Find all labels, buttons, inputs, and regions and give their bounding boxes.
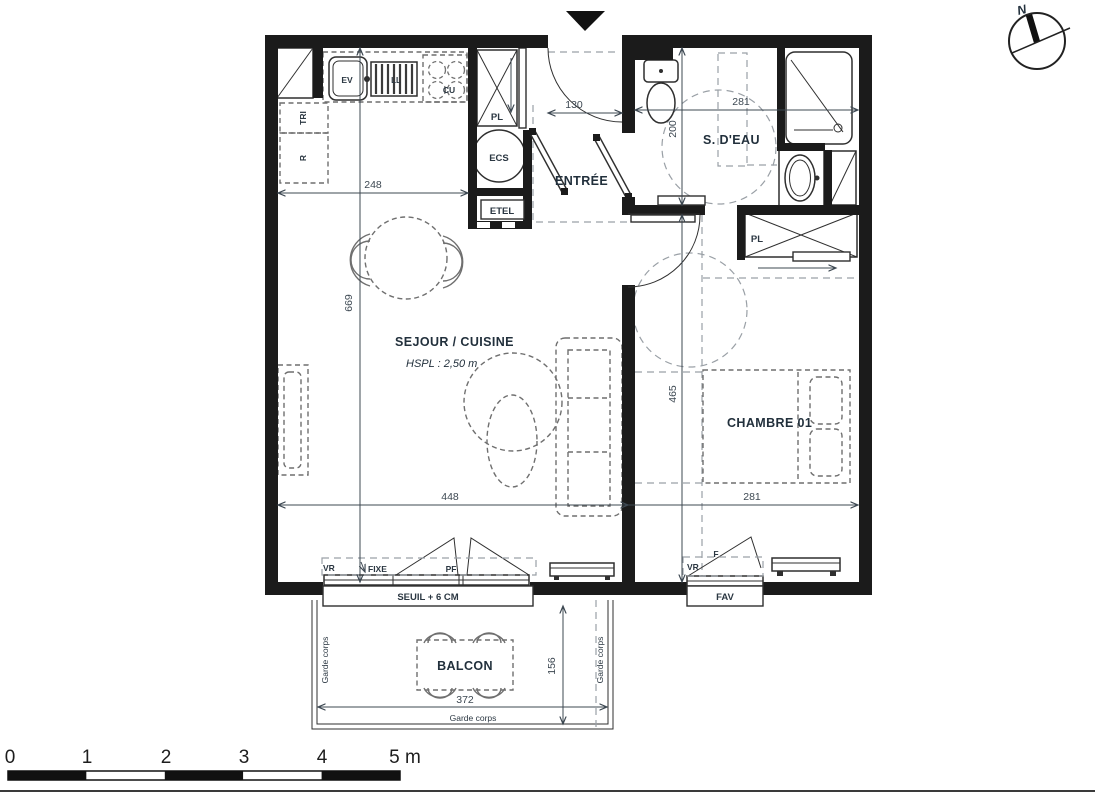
tv-console [550,563,614,576]
etel-vent-notch [477,222,490,228]
entree-door-leaves [529,128,632,200]
label-vr-right: VR [687,562,699,572]
label-garde-corps-right: Garde corps [595,637,605,684]
scale-tick-0: 0 [5,747,16,768]
bed-pillow [810,429,842,476]
label-pl-entree: PL [491,112,503,123]
wall-bottom-b [530,582,687,595]
wall-left [265,35,278,595]
sofa [556,338,622,516]
wall-toilet-stub [635,48,673,60]
scale-tick-3: 3 [239,747,250,768]
dining-chairs [350,234,462,288]
toilet-button [659,69,663,73]
dim-448: 448 [441,491,459,503]
label-tri: TRI [298,111,308,125]
armchair [464,353,562,451]
sofa-seat [568,350,610,506]
equipment [277,48,857,580]
label-seuil: SEUIL + 6 CM [397,592,458,603]
faucet-icon [364,76,370,82]
dining-table [365,217,447,299]
room-note-hspl: HSPL : 2,50 m [406,358,477,370]
scale-tick-4: 4 [317,747,328,768]
toilet-bowl [647,83,675,123]
label-garde-corps-bottom: Garde corps [450,713,497,723]
scale-tick-2: 2 [161,747,172,768]
dim-248: 248 [364,179,382,191]
wall-entree-bain-upper [622,48,635,133]
floor-plan-page: N 0 1 2 3 4 5 m SEJOUR / CUISINE HSPL : … [0,0,1095,800]
wall-under-ecs [468,188,532,196]
label-etel: ETEL [490,206,514,217]
dim-281-chambre: 281 [743,491,761,503]
label-ev: EV [341,75,353,85]
sliding-door-track [631,215,695,222]
label-garde-corps-left: Garde corps [320,637,330,684]
dim-200: 200 [667,120,679,138]
basin-faucet [815,176,820,181]
label-cu: CU [443,85,455,95]
dim-669: 669 [343,294,355,312]
bench-foot [830,571,836,576]
scale-tick-5: 5 m [389,747,421,768]
cabinet-wall-stub [313,48,323,98]
bedroom-door-swing [628,215,700,287]
closet-door-leaf [519,48,526,128]
bench-foot [777,571,783,576]
room-label-chambre: CHAMBRE 01 [727,416,812,430]
closet-sliding-track [793,252,850,261]
dim-372: 372 [456,694,474,706]
sideboard-inner [284,372,301,468]
room-label-sejour: SEJOUR / CUISINE [395,335,514,349]
basin-bowl-inner [790,160,811,196]
label-vr-left: VR [323,563,335,573]
wall-basin-right [824,150,832,212]
scale-bar: 0 1 2 3 4 5 m [5,747,421,780]
turning-circle-bathroom [662,90,776,204]
wall-sejour-chambre [622,285,635,582]
label-ecs: ECS [489,153,509,164]
bedroom-bench [772,558,840,571]
console-foot [605,576,610,580]
compass-north-label: N [1016,2,1029,18]
shutter-box-left [322,558,536,575]
turning-circle-bedroom [633,253,747,367]
floor-plan-drawing: N 0 1 2 3 4 5 m SEJOUR / CUISINE HSPL : … [0,0,1095,800]
walls [265,35,872,595]
wall-closet-stub [737,215,745,260]
bed-pillow [810,377,842,424]
fixe-arrow [361,562,365,572]
label-fav: FAV [716,592,734,603]
entrance-marker-triangle [566,11,605,31]
utility-column-diagonal [830,151,856,205]
console-foot [554,576,559,580]
dim-281-sdeau: 281 [732,96,750,108]
wall-shower-left [777,48,785,145]
dim-465: 465 [667,385,679,403]
wall-bottom-c [763,582,872,595]
sideboard [278,365,308,475]
wall-bottom-a [265,582,323,595]
wall-bain-bottom-b [737,205,859,215]
corner-cabinet-diagonal [277,48,313,98]
doors [529,48,850,287]
pf-casement-right [467,538,529,575]
label-r: R [298,155,308,161]
accessibility-zones [533,52,856,576]
dim-130: 130 [565,99,583,111]
dim-156: 156 [546,657,558,675]
wall-top-right [622,35,872,48]
compass-cross-line [1012,28,1070,53]
etel-vent-notch [502,222,515,228]
label-f: F [713,549,718,559]
room-label-sdeau: S. D'EAU [703,133,760,147]
compass-needle [1029,15,1037,42]
wall-right [859,35,872,595]
label-pl-chambre: PL [751,234,763,245]
label-ll: LL [391,76,401,85]
pouf [487,395,537,487]
room-label-balcon: BALCON [437,659,493,673]
north-compass: N [1009,2,1070,69]
wall-kitchen-entree [468,48,477,229]
wall-top-left [265,35,548,48]
scale-tick-1: 1 [82,747,93,768]
entrance-door-swing [548,48,622,122]
label-pf: PF [446,564,457,574]
room-label-entree: ENTRÉE [555,173,608,188]
shower-diagonal [791,60,843,132]
wall-under-shower [777,143,825,151]
label-fixe: FIXE [368,564,387,574]
